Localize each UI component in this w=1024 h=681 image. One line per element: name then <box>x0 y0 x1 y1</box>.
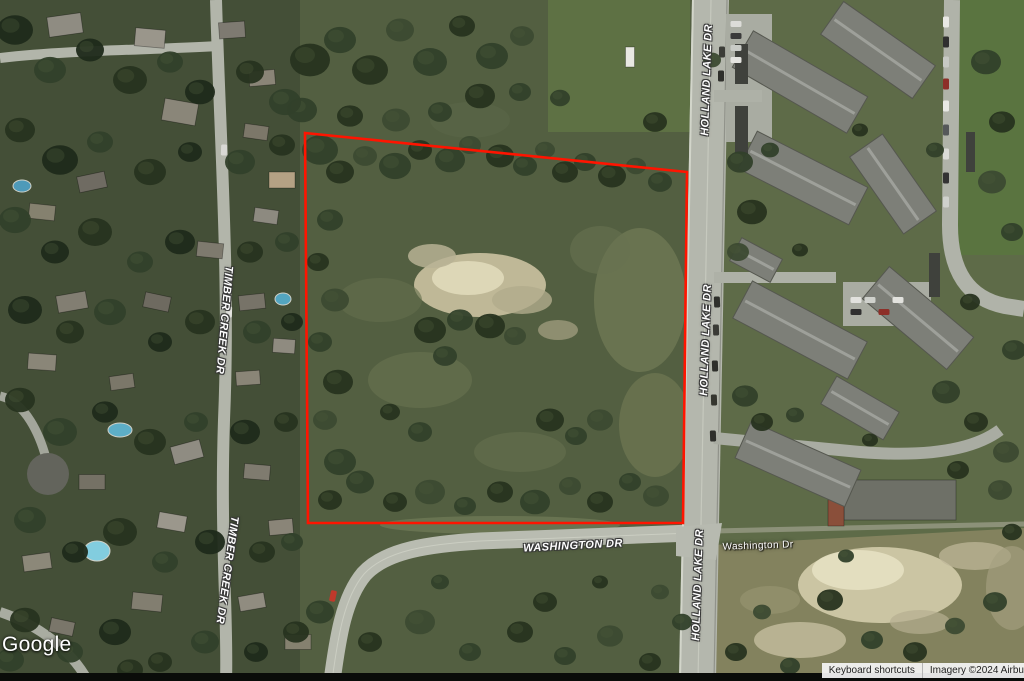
google-logo[interactable]: Google <box>2 633 72 657</box>
keyboard-shortcuts-button[interactable]: Keyboard shortcuts <box>822 663 922 678</box>
attribution-bar: Keyboard shortcuts Imagery ©2024 Airbus <box>822 663 1024 678</box>
satellite-imagery <box>0 0 1024 681</box>
imagery-attribution: Imagery ©2024 Airbus <box>922 663 1024 678</box>
satellite-map[interactable]: HOLLAND LAKE DR HOLLAND LAKE DR HOLLAND … <box>0 0 1024 681</box>
